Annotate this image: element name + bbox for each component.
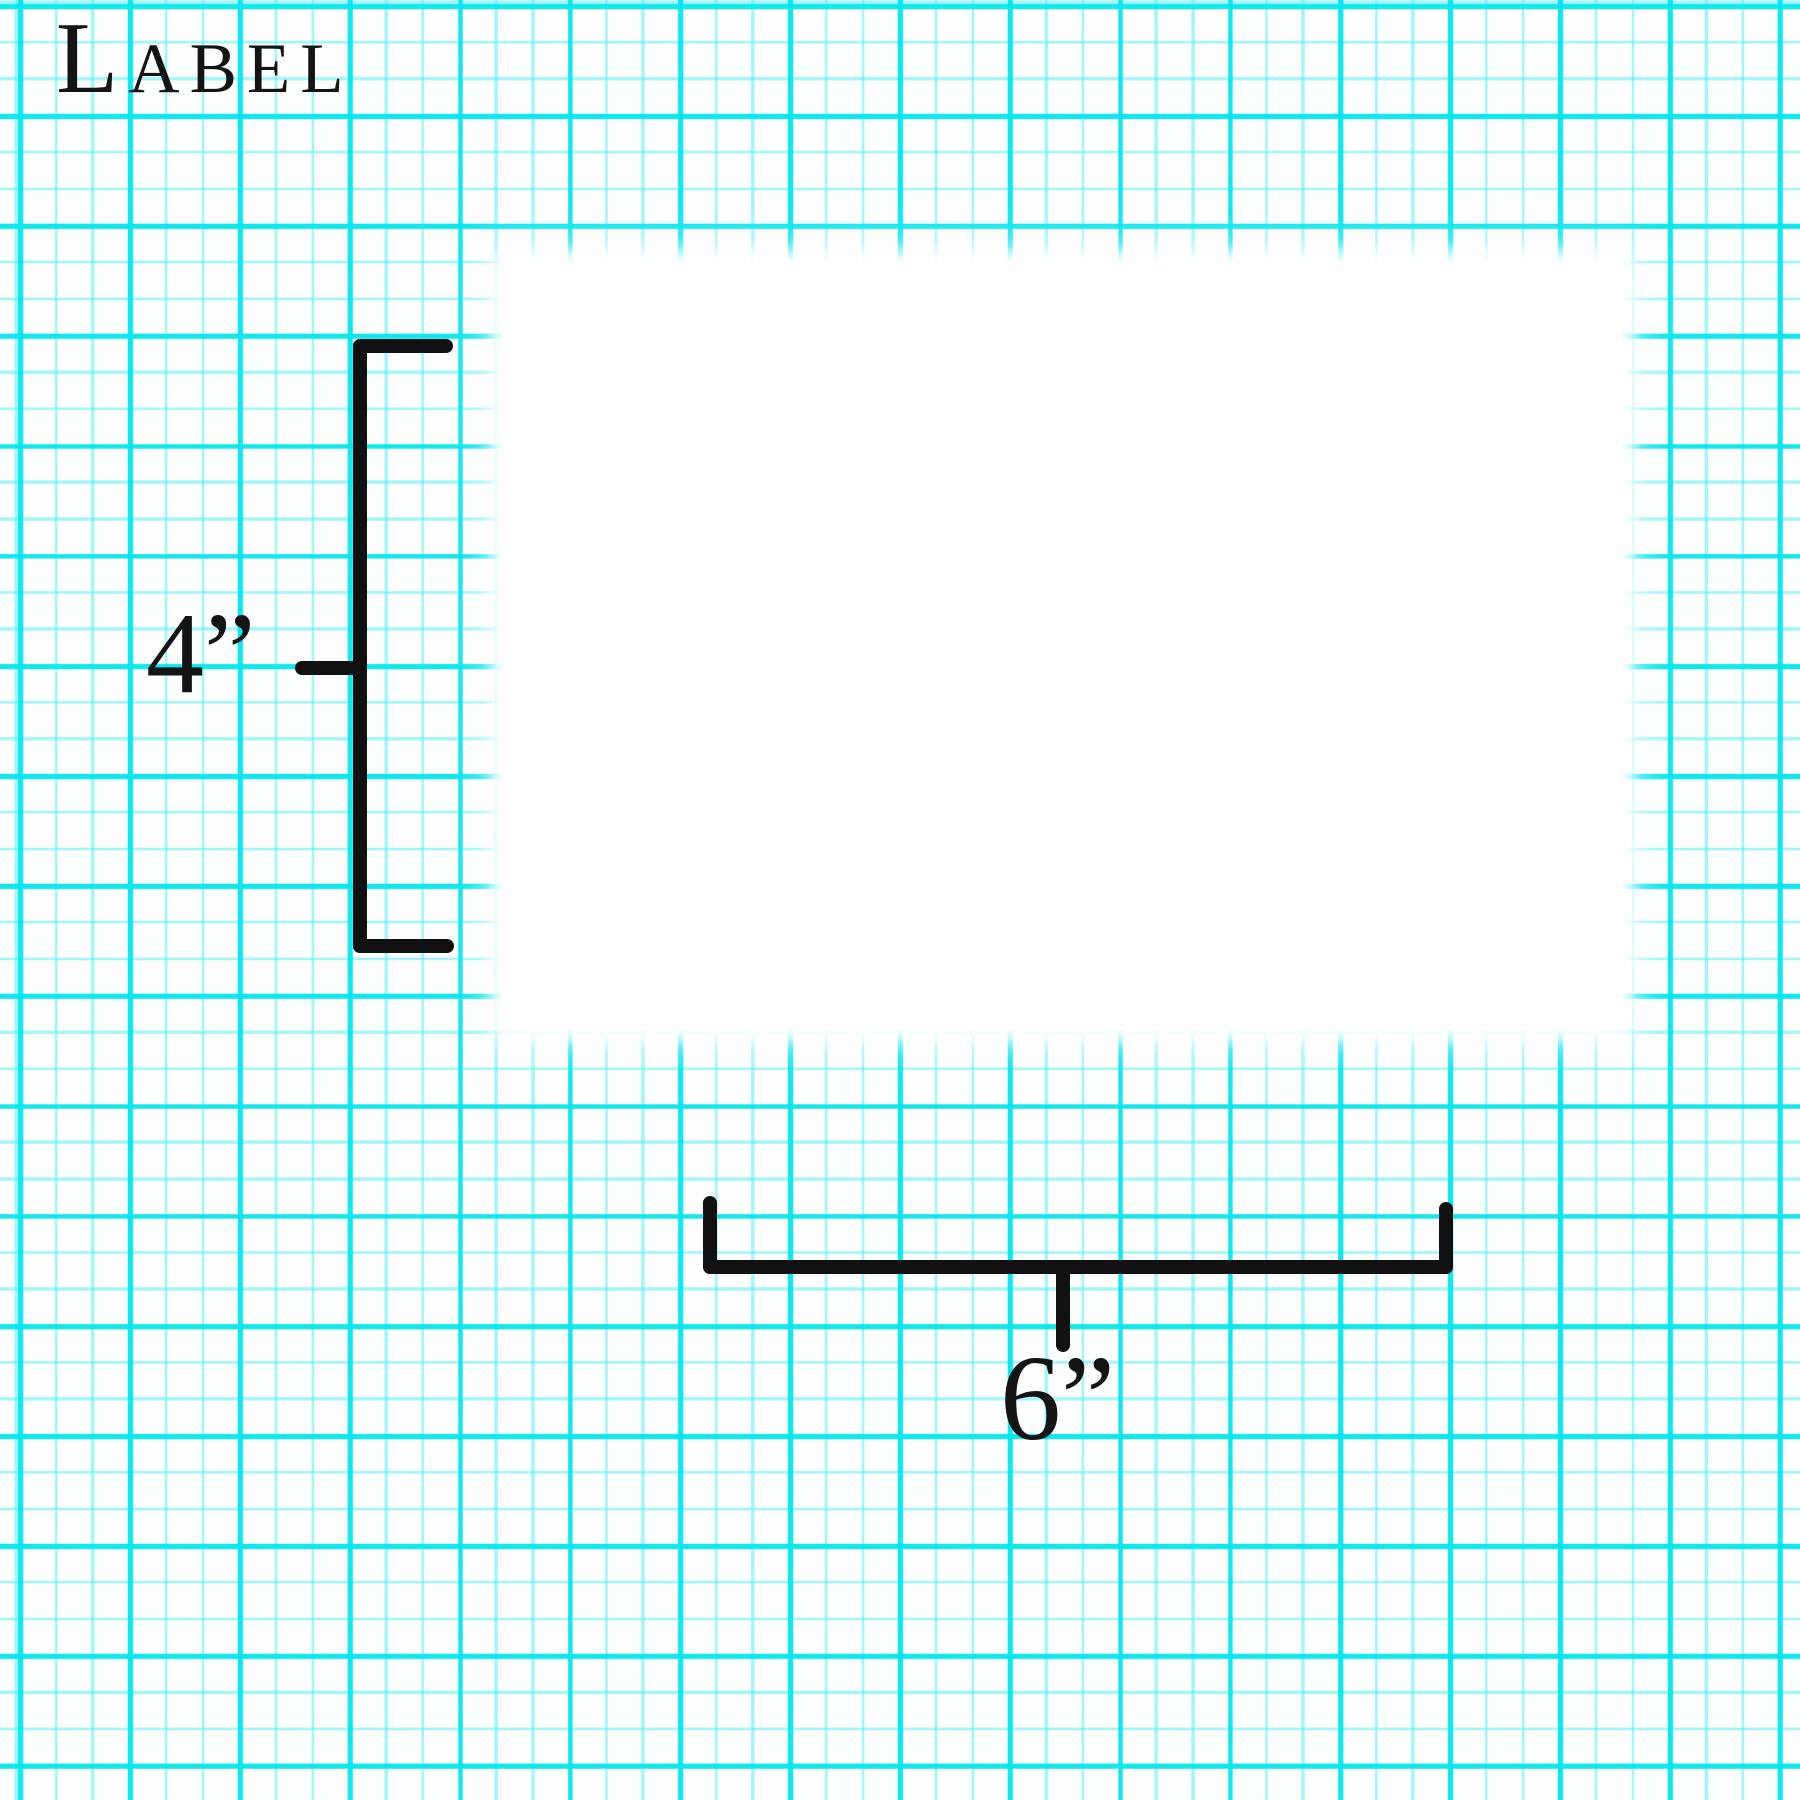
graph-paper-background: Label 4” 6” (0, 0, 1800, 1800)
width-bracket-horizontal-bar (703, 1260, 1453, 1274)
page-title: Label (56, 8, 354, 110)
height-dimension-label: 4” (146, 596, 256, 712)
height-bracket-mid-tick (295, 661, 367, 675)
height-bracket-top-arm (353, 339, 453, 353)
blank-label-preview (503, 262, 1622, 1030)
height-bracket-vertical-bar (353, 339, 367, 953)
width-bracket-right-tick (1439, 1202, 1453, 1274)
width-bracket-left-tick (703, 1196, 717, 1274)
height-bracket-bottom-arm (353, 939, 454, 953)
width-dimension-label: 6” (1000, 1338, 1115, 1460)
